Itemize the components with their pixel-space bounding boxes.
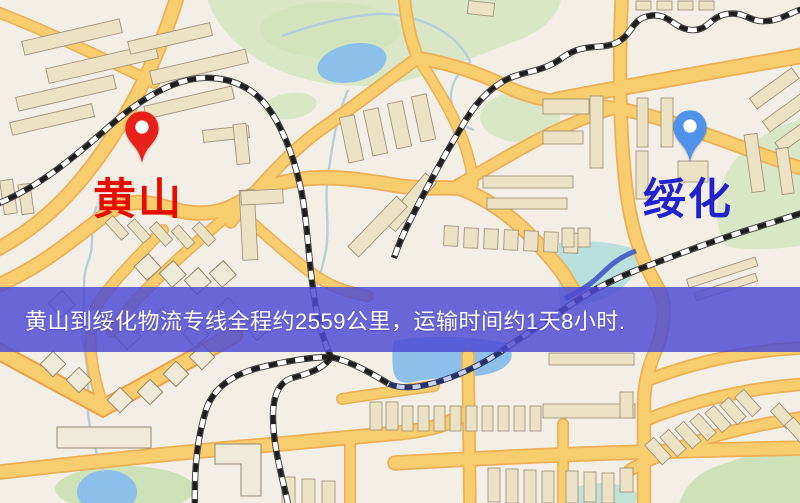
basemap: [0, 0, 800, 503]
destination-label: 绥化: [643, 179, 733, 222]
origin-pin[interactable]: [123, 105, 161, 169]
origin-pin-icon: [123, 105, 161, 169]
destination-pin[interactable]: [671, 104, 709, 168]
route-banner-text: 黄山到绥化物流专线全程约2559公里，运输时间约1天8小时.: [25, 304, 626, 336]
origin-label: 黄山: [93, 179, 183, 222]
map-canvas: 黄山 绥化 黄山到绥化物流专线全程约2559公里，运输时间约1天8小时.: [0, 0, 800, 503]
route-banner: 黄山到绥化物流专线全程约2559公里，运输时间约1天8小时.: [0, 287, 800, 352]
destination-pin-icon: [671, 104, 709, 168]
